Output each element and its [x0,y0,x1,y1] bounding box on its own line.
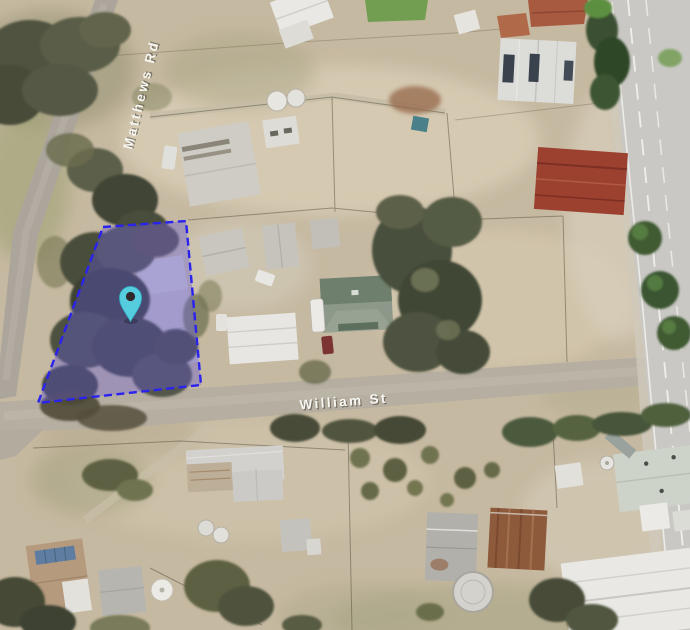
satellite-map-image[interactable]: Matthews Rd Matthews Rd William St Willi… [0,0,690,630]
green-roof-house [320,275,394,333]
map-viewport[interactable]: Matthews Rd Matthews Rd William St Willi… [0,0,690,630]
